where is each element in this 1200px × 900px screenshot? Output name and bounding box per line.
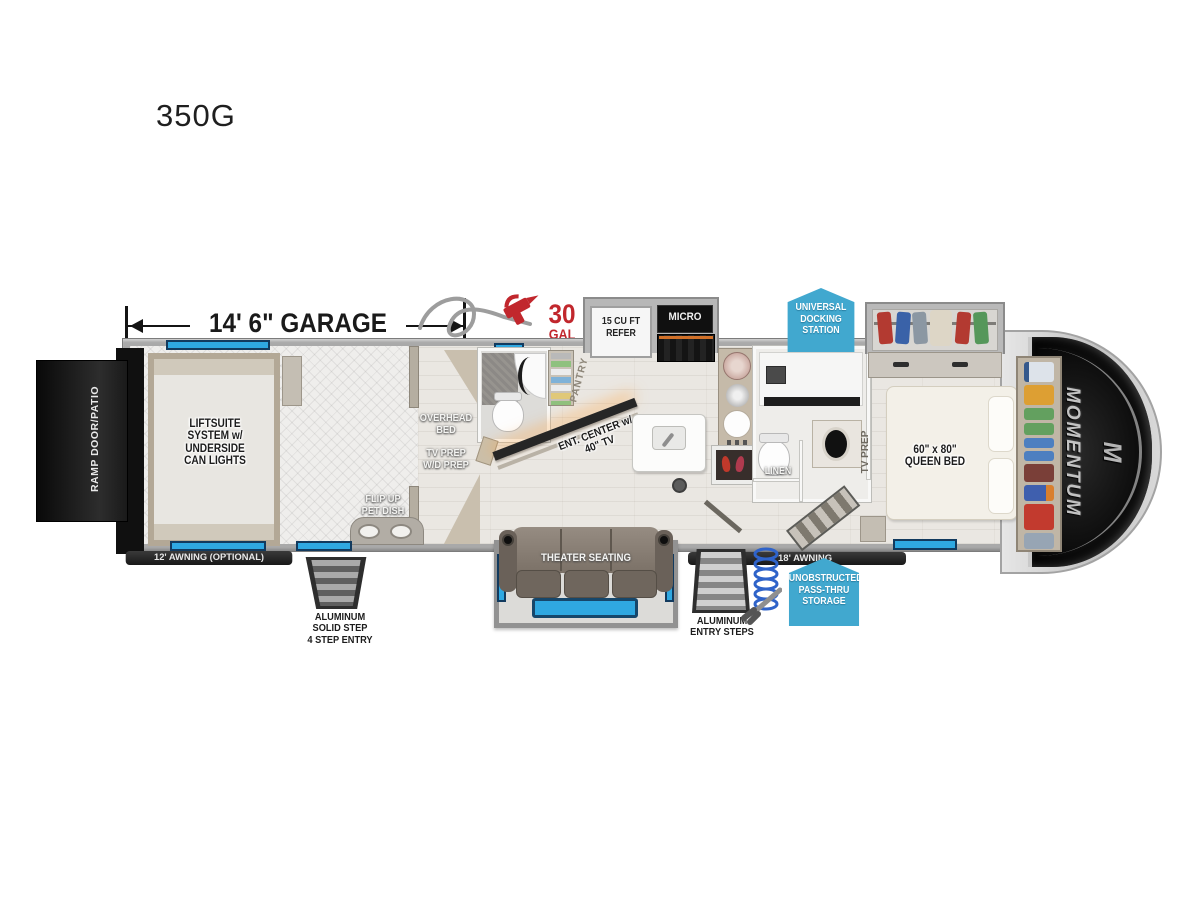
shower-control [766, 366, 786, 384]
garage-divider-wall-top [409, 346, 419, 408]
theater-seat-1 [516, 570, 561, 598]
queen-pillow-2 [988, 458, 1014, 514]
wardrobe-item-6 [1024, 451, 1054, 461]
closet-garment-6 [973, 312, 989, 345]
half-bath-toilet [492, 398, 524, 432]
vanity-sink [822, 427, 850, 461]
bathroom-toilet-tank [759, 433, 789, 443]
bedroom-tv-prep-label: TV PREP [860, 422, 872, 482]
wardrobe-item-4 [1024, 423, 1054, 435]
closet-garment-2 [895, 312, 911, 345]
bedroom-bottom-window [893, 539, 957, 550]
wardrobe-item-2 [1024, 385, 1054, 405]
wardrobe-item-8 [1024, 485, 1054, 501]
garage-bottom-window-1 [170, 541, 266, 551]
overhead-bed-label: OVERHEAD BED [411, 413, 481, 436]
pet-dish-bowl-right [390, 524, 412, 539]
garage-bench [282, 356, 302, 406]
hose-nozzle-icon [736, 584, 782, 628]
cooktop-knobs [727, 440, 749, 445]
half-bath-shower-glass [518, 357, 542, 395]
closet-garment-4 [930, 310, 952, 346]
wardrobe-item-1 [1024, 362, 1054, 382]
theater-seat-2 [564, 570, 609, 598]
theater-cupholder-left [502, 534, 514, 546]
theater-sofa-seam-1 [560, 529, 562, 571]
garage-dimension-label: 14' 6" GARAGE [190, 308, 406, 339]
pantry-shelf-1 [551, 353, 571, 359]
dresser-handle-1 [893, 362, 909, 367]
refrigerator-label: 15 CU FT REFER [594, 316, 649, 339]
range-handle [659, 336, 713, 339]
fireplace [712, 446, 756, 484]
pet-dish-bowl-left [358, 524, 380, 539]
wardrobe-item-7 [1024, 464, 1054, 482]
wardrobe-item-5 [1024, 438, 1054, 448]
theater-sofa-seam-2 [610, 529, 612, 571]
momentum-logo: MOMENTUM [1061, 377, 1083, 527]
wardrobe-item-10 [1024, 533, 1054, 549]
counter-sink [723, 410, 751, 438]
page-title: 350G [156, 98, 236, 134]
passthru-storage-badge: UNOBSTRUCTED PASS-THRU STORAGE [789, 558, 859, 626]
floorplan-canvas: 350G 14' 6" GARAGE 30 GAL MOMENTUM M RAM… [0, 0, 1200, 900]
closet-garment-1 [877, 311, 894, 344]
pantry-shelf-3 [551, 369, 571, 375]
pantry-shelf-4 [551, 377, 571, 383]
ramp-door-label: RAMP DOOR/PATIO [89, 359, 103, 519]
solid-step-label: ALUMINUM SOLID STEP 4 STEP ENTRY [298, 612, 382, 646]
dimension-arrow-left-icon [130, 319, 143, 333]
theater-cupholder-right [658, 534, 670, 546]
counter-bowl [723, 352, 751, 380]
awning-left-bar: 12' AWNING (OPTIONAL) [126, 551, 293, 565]
closet-garment-5 [955, 311, 972, 344]
momentum-m-mark: M [1102, 430, 1126, 474]
queen-pillow-1 [988, 396, 1014, 452]
pantry-shelf-5 [551, 385, 571, 391]
pantry-shelf-2 [551, 361, 571, 367]
linen-wall-h [753, 478, 803, 482]
trash-can [672, 478, 687, 493]
wardrobe-item-9 [1024, 504, 1054, 530]
closet-garment-3 [912, 312, 928, 345]
half-bath-toilet-tank [494, 392, 522, 401]
flip-up-pet-dish-label: FLIP UP PET DISH [349, 494, 418, 517]
microwave-label: MICRO [660, 311, 710, 323]
queen-bed-label: 60" x 80" QUEEN BED [894, 444, 977, 469]
garage-bottom-window-2 [296, 541, 352, 551]
bedroom-dresser [868, 352, 1002, 378]
theater-label: THEATER SEATING [524, 552, 647, 564]
theater-sofa-back [512, 527, 660, 573]
wardrobe-item-3 [1024, 408, 1054, 420]
linen-label: LINEN [753, 466, 802, 477]
dresser-handle-2 [952, 362, 968, 367]
tv-wd-prep-label: TV PREP W/D PREP [411, 448, 481, 471]
counter-pot [726, 384, 749, 407]
liftsuite-label: LIFTSUITE SYSTEM w/ UNDERSIDE CAN LIGHTS [165, 418, 265, 468]
theater-seat-3 [612, 570, 657, 598]
nightstand [860, 516, 886, 542]
liftsuite-footboard [154, 524, 274, 540]
docking-station-badge: UNIVERSAL DOCKING STATION [788, 288, 855, 352]
ramp-door [36, 360, 128, 522]
bathroom-shower-glass [764, 397, 860, 406]
theater-rug [532, 598, 638, 618]
garage-top-window [166, 340, 270, 350]
liftsuite-headboard [154, 359, 274, 375]
